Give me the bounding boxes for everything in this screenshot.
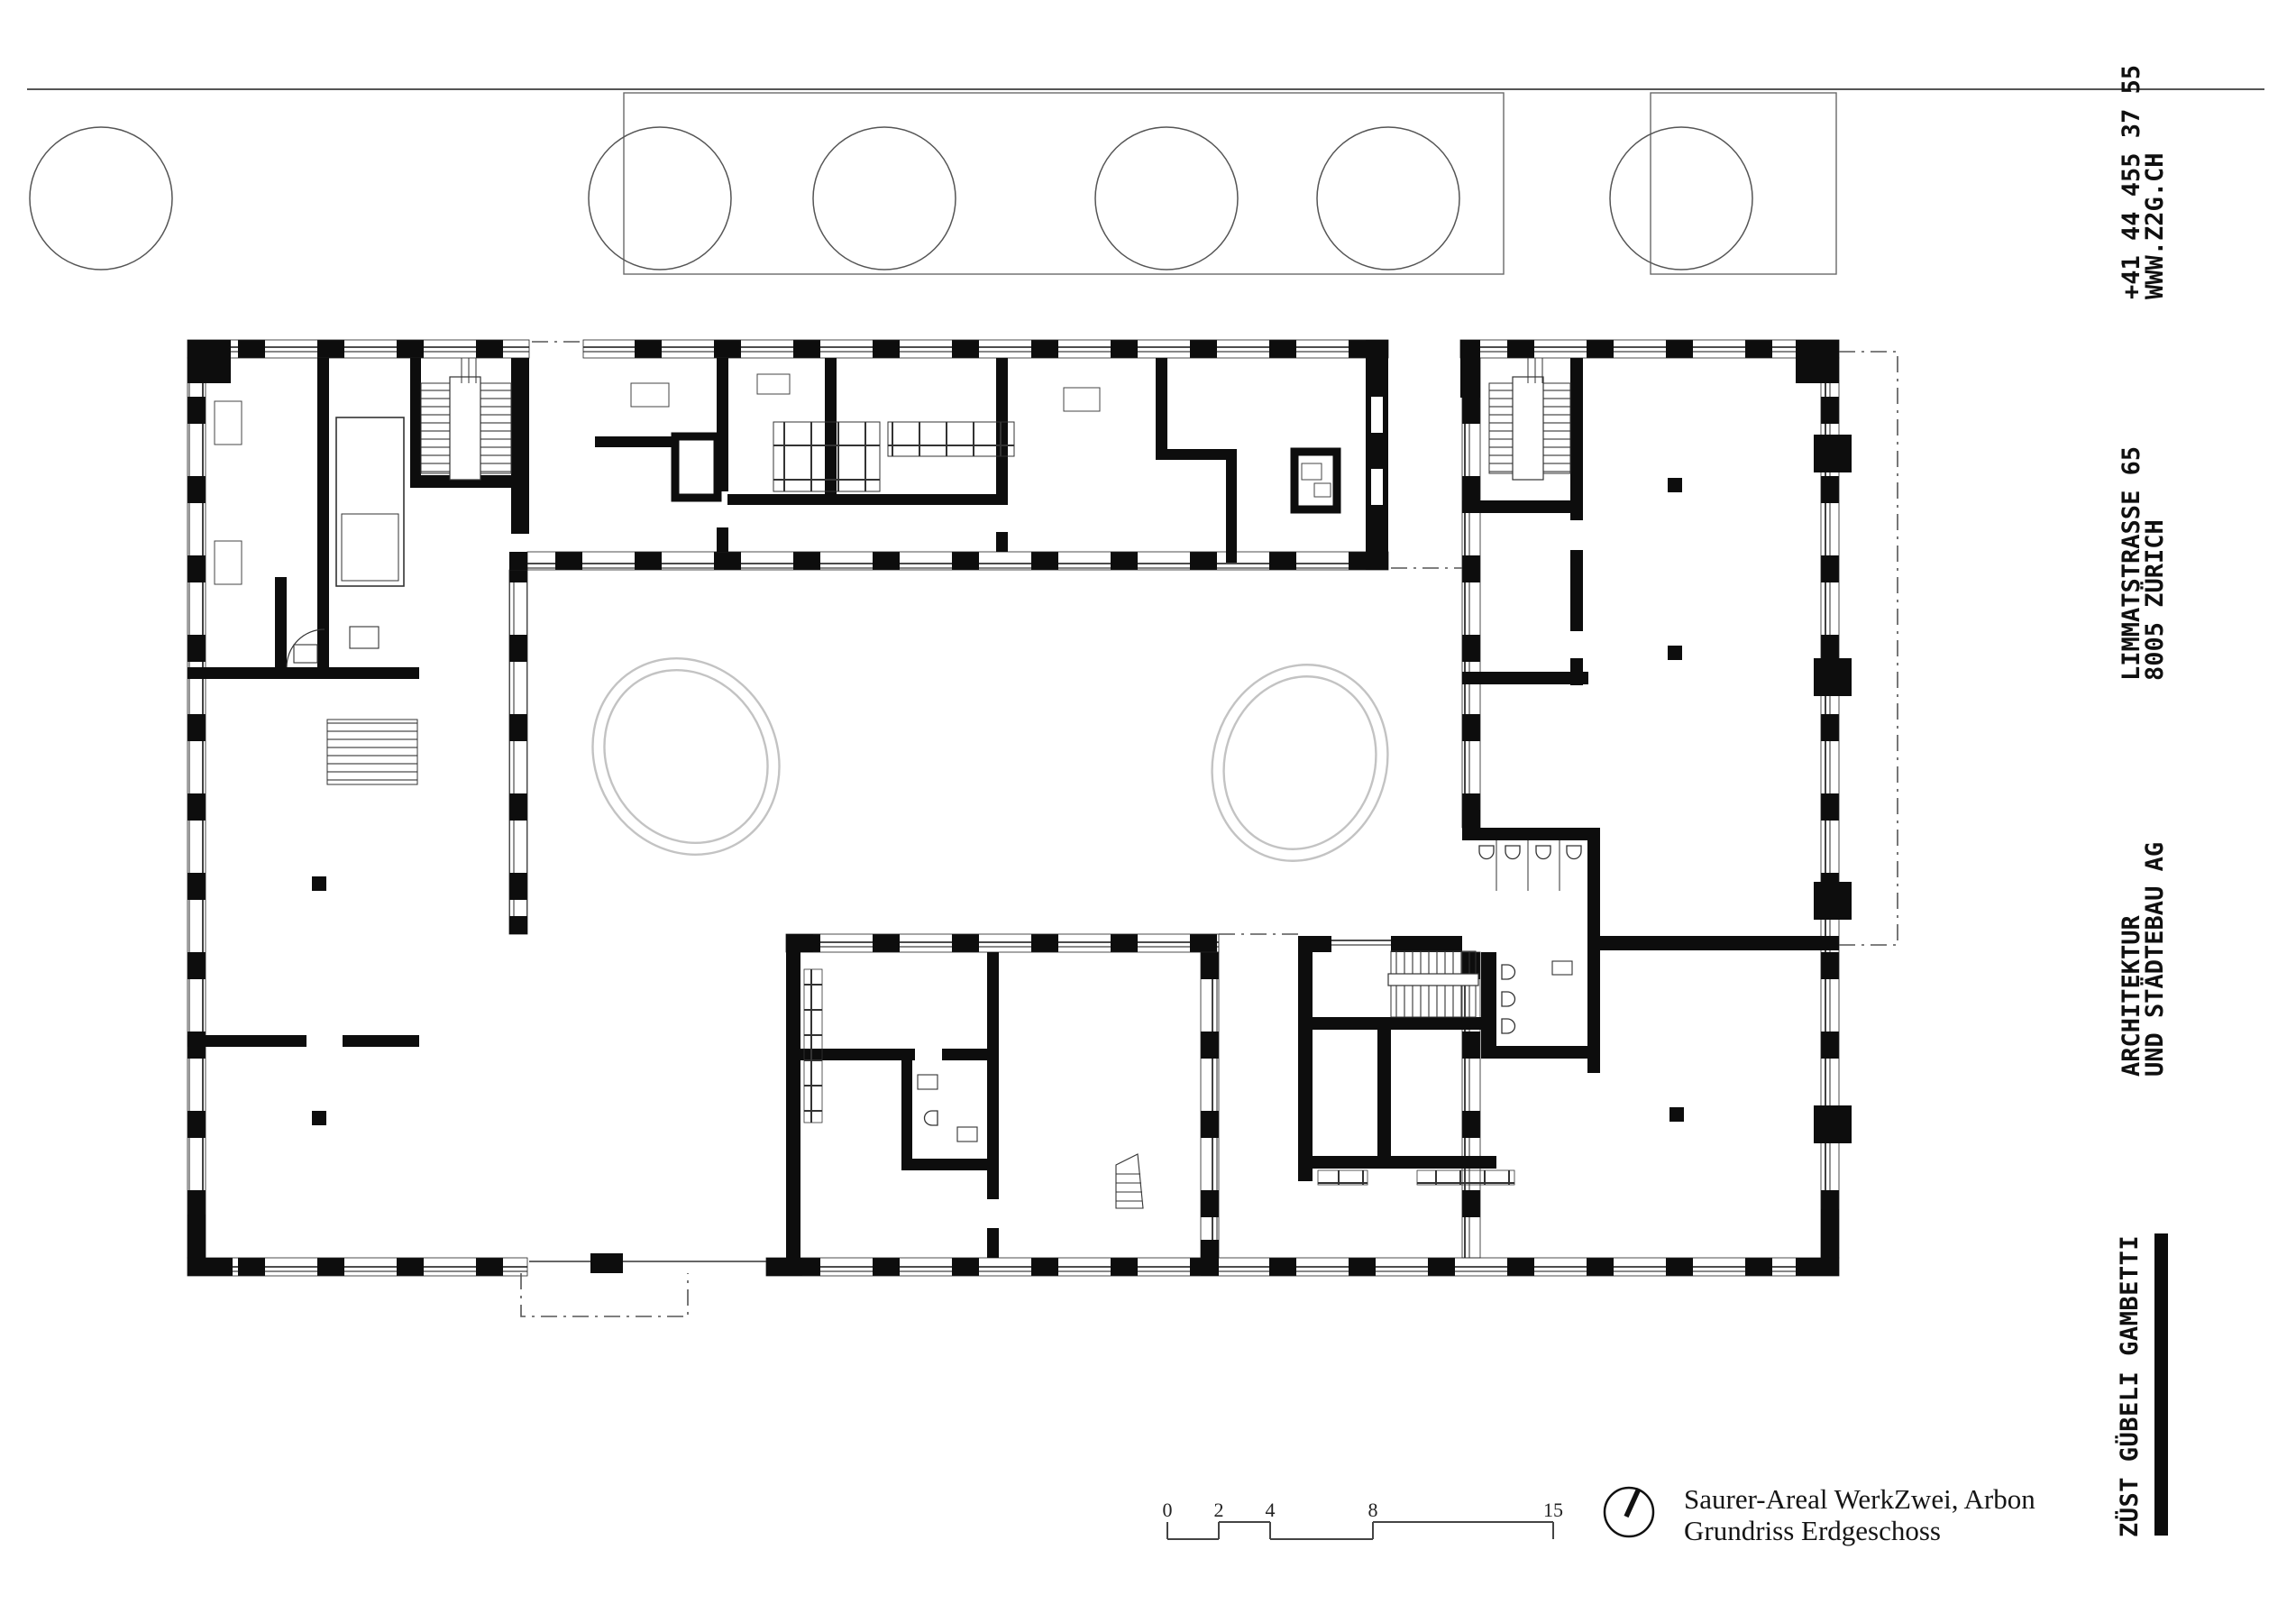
courtyard-ovals (556, 623, 1413, 890)
left-wing (188, 358, 529, 1125)
address-city: 8005 ZÜRICH (2144, 446, 2167, 681)
service-box (1294, 452, 1337, 509)
scale-label-4: 4 (1266, 1499, 1276, 1521)
north-arrow-icon (1605, 1488, 1653, 1536)
column (312, 876, 326, 891)
floor-plan-drawing: 0 2 4 8 15 (0, 0, 2296, 1623)
contact-web: WWW.Z2G.CH (2144, 65, 2167, 299)
shelf (804, 969, 822, 1123)
project-title: Saurer-Areal WerkZwei, Arbon (1684, 1483, 2035, 1515)
column (1668, 478, 1682, 492)
elevator-shaft (336, 417, 404, 586)
site-context (27, 89, 2264, 274)
stair-center (1388, 951, 1478, 1017)
ramp (1116, 1154, 1143, 1208)
middle-wing (786, 952, 1143, 1258)
right-wing (1462, 358, 1839, 1122)
drawing-title: Grundriss Erdgeschoss (1684, 1515, 2035, 1546)
contact-block: +41 44 455 37 55 WWW.Z2G.CH (2120, 65, 2167, 299)
planter-strip-b (1651, 93, 1836, 274)
center-core (1298, 828, 1600, 1185)
scale-label-8: 8 (1368, 1499, 1378, 1521)
stair-secondary (327, 720, 417, 784)
planter-strip-a (624, 93, 1504, 274)
drawing-sheet: 0 2 4 8 15 +41 44 455 37 55 WWW.Z2G.CH L… (0, 0, 2296, 1623)
address-block: LIMMATSTRASSE 65 8005 ZÜRICH (2120, 446, 2167, 681)
column (1669, 1107, 1684, 1122)
column (1668, 646, 1682, 660)
tree-circles (30, 127, 1752, 270)
scale-label-0: 0 (1163, 1499, 1173, 1521)
column (312, 1111, 326, 1125)
scale-bar: 0 2 4 8 15 (1163, 1499, 1564, 1539)
brand-bar (2154, 1233, 2168, 1536)
brand-logotype: ZÜST GÜBELI GAMBETTI (2118, 1235, 2142, 1537)
scale-label-15: 15 (1543, 1499, 1563, 1521)
kitchen-counter (773, 422, 880, 491)
firm-block: ARCHITEKTUR UND STÄDTEBAU AG (2120, 842, 2167, 1077)
south-passage (529, 1253, 766, 1273)
title-block: Saurer-Areal WerkZwei, Arbon Grundriss E… (1684, 1483, 2035, 1546)
service-box (675, 436, 718, 498)
kitchen-counter (888, 422, 1014, 456)
top-wing (595, 340, 1388, 570)
scale-label-2: 2 (1214, 1499, 1224, 1521)
firm-line2: UND STÄDTEBAU AG (2144, 842, 2167, 1077)
stair-northeast (1489, 358, 1583, 685)
